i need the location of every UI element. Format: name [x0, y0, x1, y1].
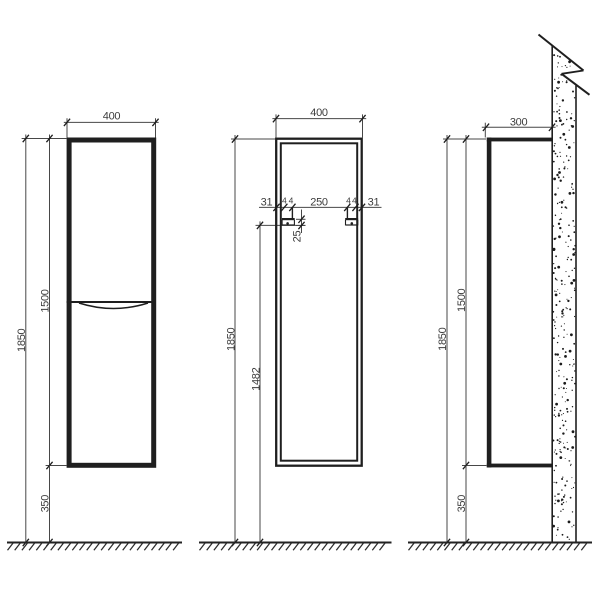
- svg-text:4: 4: [346, 196, 351, 206]
- svg-text:400: 400: [310, 107, 328, 119]
- svg-text:350: 350: [456, 495, 468, 513]
- svg-text:1500: 1500: [456, 288, 468, 311]
- svg-text:31: 31: [368, 196, 380, 208]
- svg-text:350: 350: [40, 495, 52, 513]
- svg-text:25: 25: [292, 231, 304, 243]
- svg-text:4: 4: [289, 196, 294, 206]
- svg-text:250: 250: [310, 196, 328, 208]
- svg-text:1850: 1850: [225, 327, 237, 350]
- svg-text:1850: 1850: [16, 328, 28, 351]
- svg-text:1500: 1500: [40, 289, 52, 312]
- svg-text:1482: 1482: [250, 367, 262, 390]
- svg-text:31: 31: [261, 196, 273, 208]
- svg-text:400: 400: [103, 110, 121, 122]
- svg-text:300: 300: [510, 117, 528, 129]
- svg-text:1850: 1850: [437, 327, 449, 350]
- svg-text:4: 4: [282, 196, 287, 206]
